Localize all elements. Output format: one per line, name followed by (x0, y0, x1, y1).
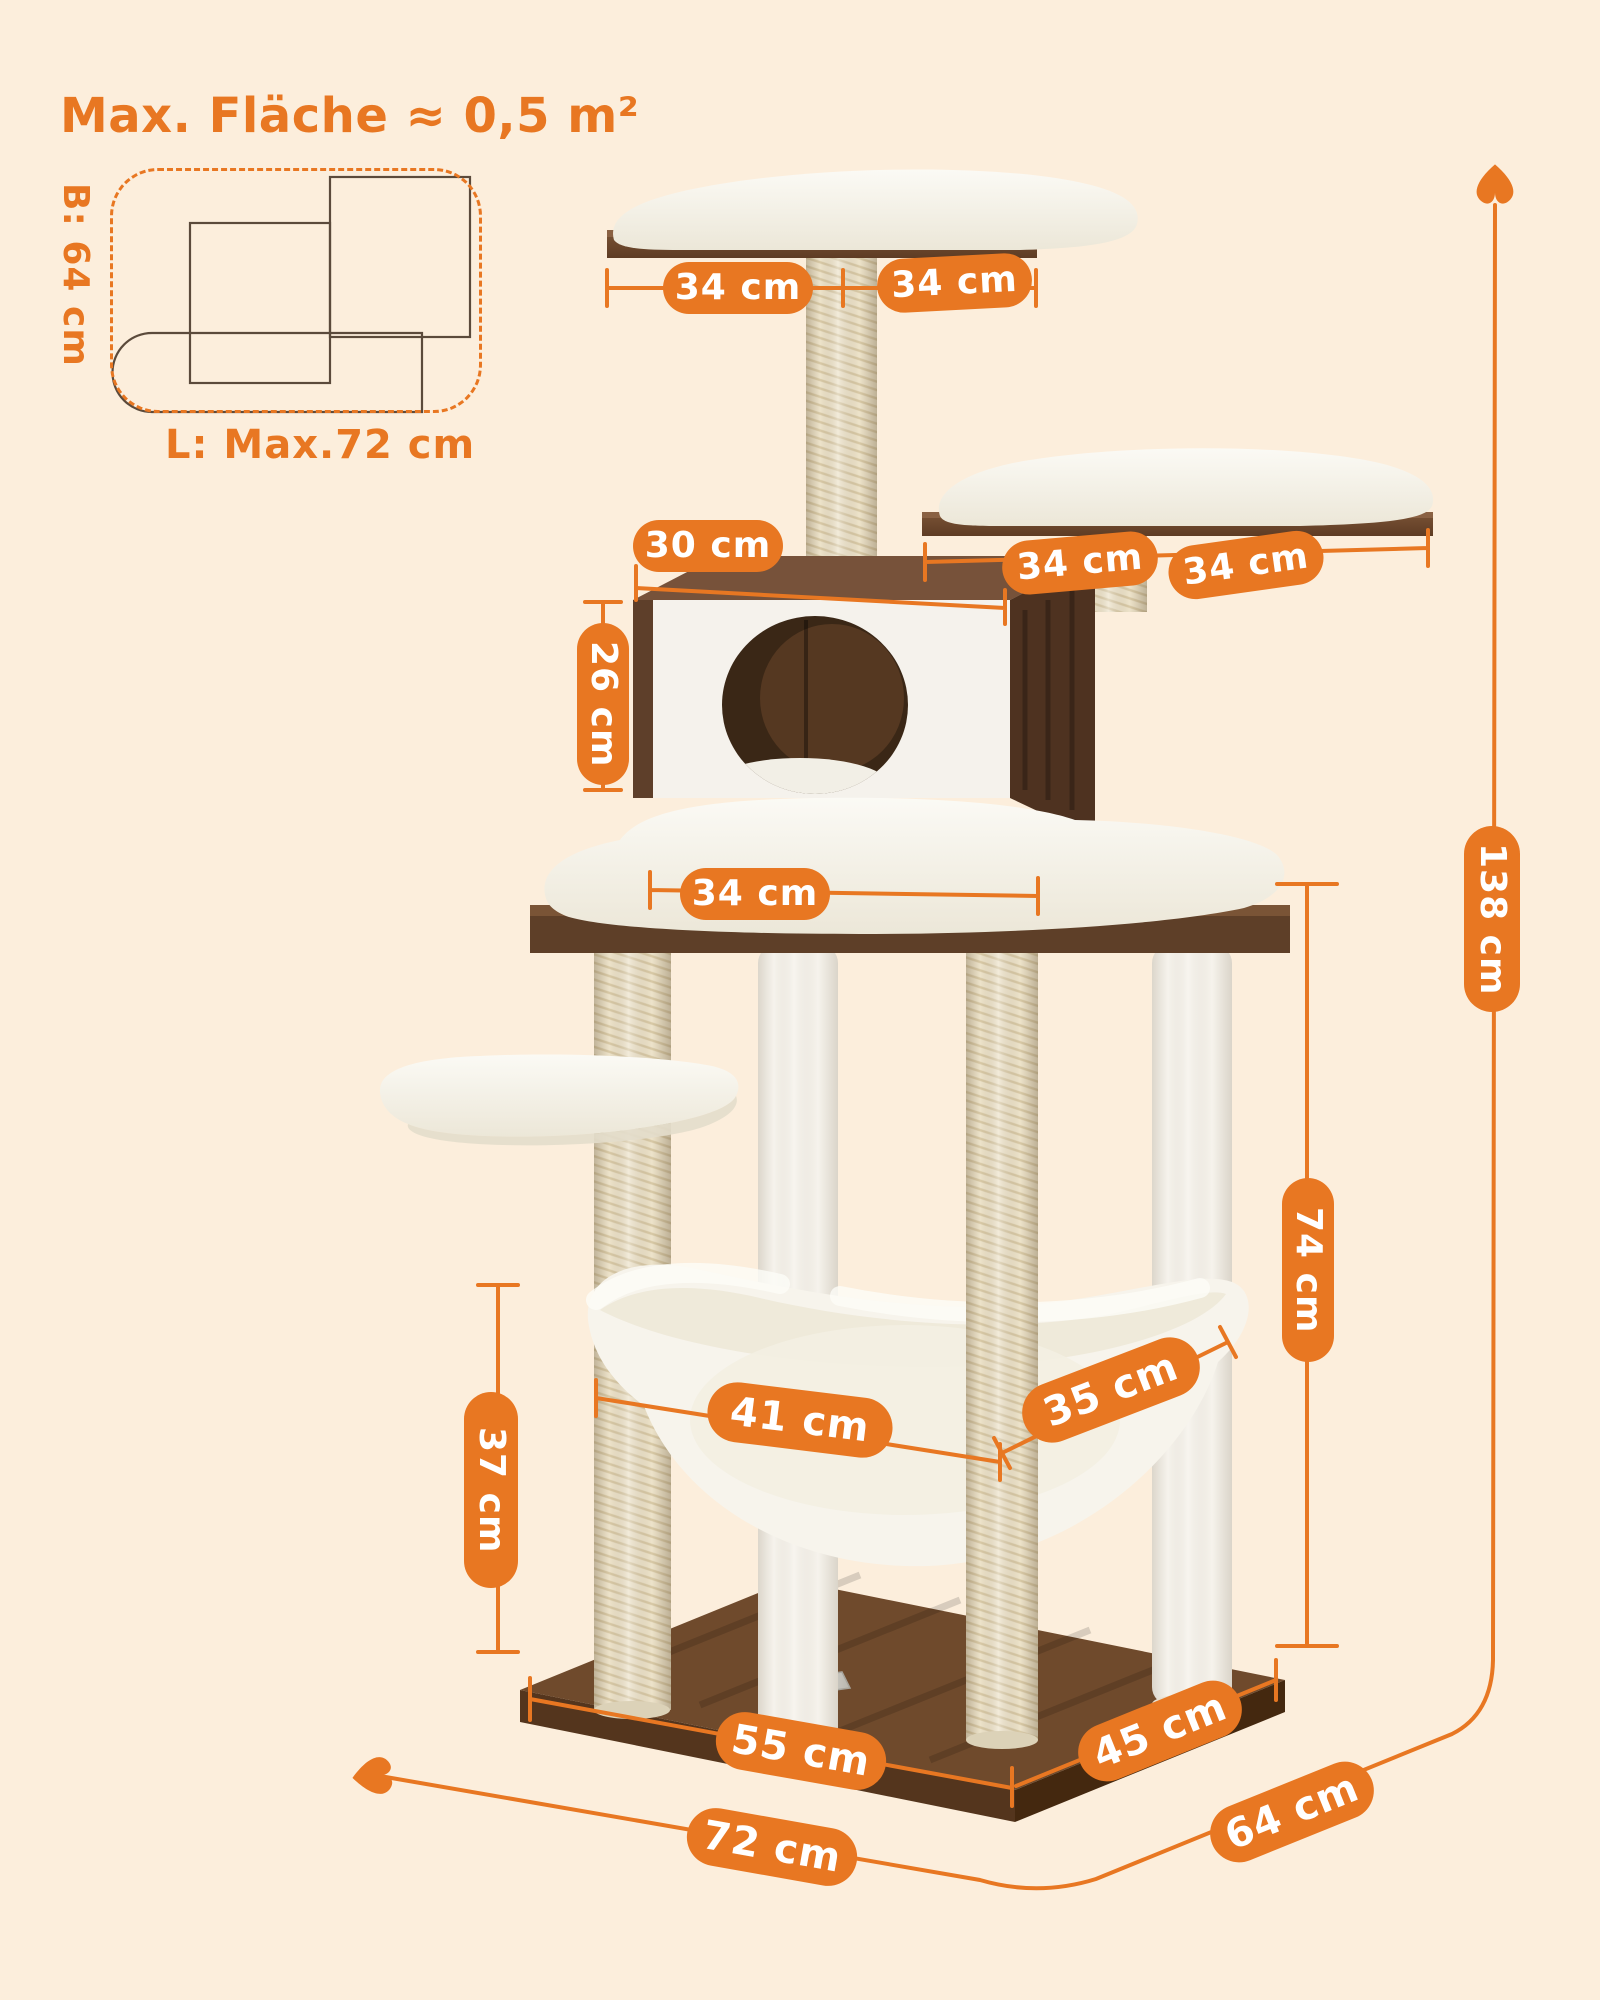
post-right-sisal (966, 945, 1038, 1749)
dim-pill-condo-height: 26 cm (577, 623, 629, 785)
max-area-dashed-box (110, 168, 482, 413)
top-post (806, 258, 877, 608)
dim-pill-middle-platform: 34 cm (680, 868, 830, 920)
hammock (588, 1265, 1249, 1567)
product-dimension-image: Max. Fläche ≈ 0,5 m² B: 64 cm L: Max.72 … (0, 0, 1600, 2000)
middle-platform (530, 798, 1290, 953)
middle-platform-cushion (544, 798, 1284, 934)
condo-cube (633, 556, 1095, 838)
dim-pill-condo-width: 30 cm (633, 520, 783, 572)
tier2-platform (922, 448, 1433, 536)
dim-pill-top-platform-left: 34 cm (663, 262, 813, 314)
top-platform-cushion (613, 169, 1138, 250)
heart-arrow-up-icon (1477, 164, 1514, 203)
top-platform (607, 169, 1138, 258)
heart-arrow-left-icon (351, 1756, 393, 1796)
small-platform (380, 1054, 739, 1145)
area-length-label: L: Max.72 cm (165, 422, 475, 468)
area-width-label: B: 64 cm (55, 183, 96, 373)
dim-pill-top-platform-right: 34 cm (876, 252, 1034, 314)
max-area-title: Max. Fläche ≈ 0,5 m² (60, 88, 639, 144)
tier2-platform-cushion (939, 448, 1433, 526)
dim-pill-upper-height: 74 cm (1282, 1178, 1334, 1362)
dim-pill-total-height: 138 cm (1464, 826, 1520, 1012)
dim-pill-hammock-clearance: 37 cm (464, 1392, 518, 1588)
